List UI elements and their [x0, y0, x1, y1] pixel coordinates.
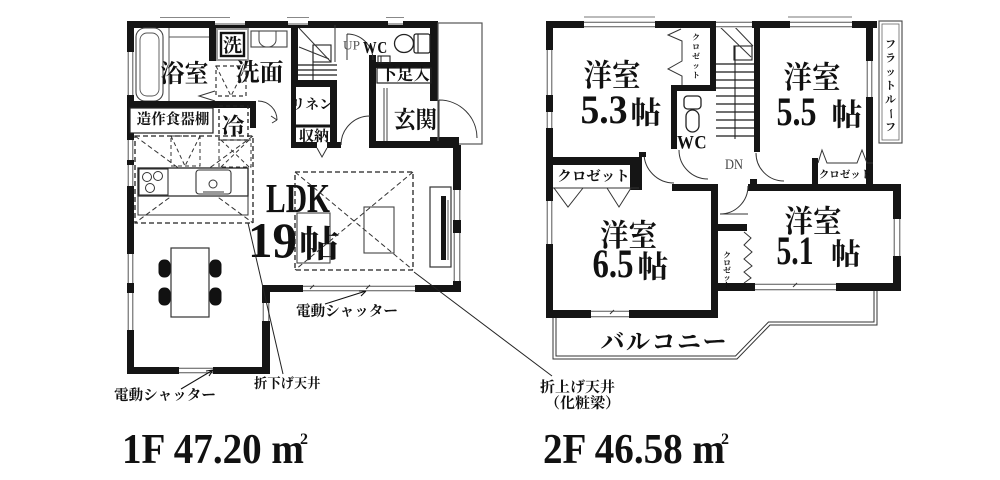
svg-text:1F 47.20 m: 1F 47.20 m — [122, 427, 304, 473]
svg-text:5.1: 5.1 — [777, 228, 814, 273]
svg-text:2: 2 — [721, 431, 729, 448]
svg-text:2F 46.58 m: 2F 46.58 m — [543, 427, 725, 473]
svg-text:WC: WC — [363, 38, 388, 57]
svg-text:UP: UP — [343, 38, 360, 53]
svg-text:WC: WC — [677, 133, 707, 154]
svg-text:6.5: 6.5 — [593, 241, 634, 286]
svg-text:2: 2 — [300, 431, 308, 448]
svg-text:5.5: 5.5 — [777, 89, 817, 134]
svg-text:5.3: 5.3 — [581, 87, 628, 132]
svg-text:DN: DN — [725, 157, 743, 173]
svg-text:19: 19 — [248, 212, 297, 268]
